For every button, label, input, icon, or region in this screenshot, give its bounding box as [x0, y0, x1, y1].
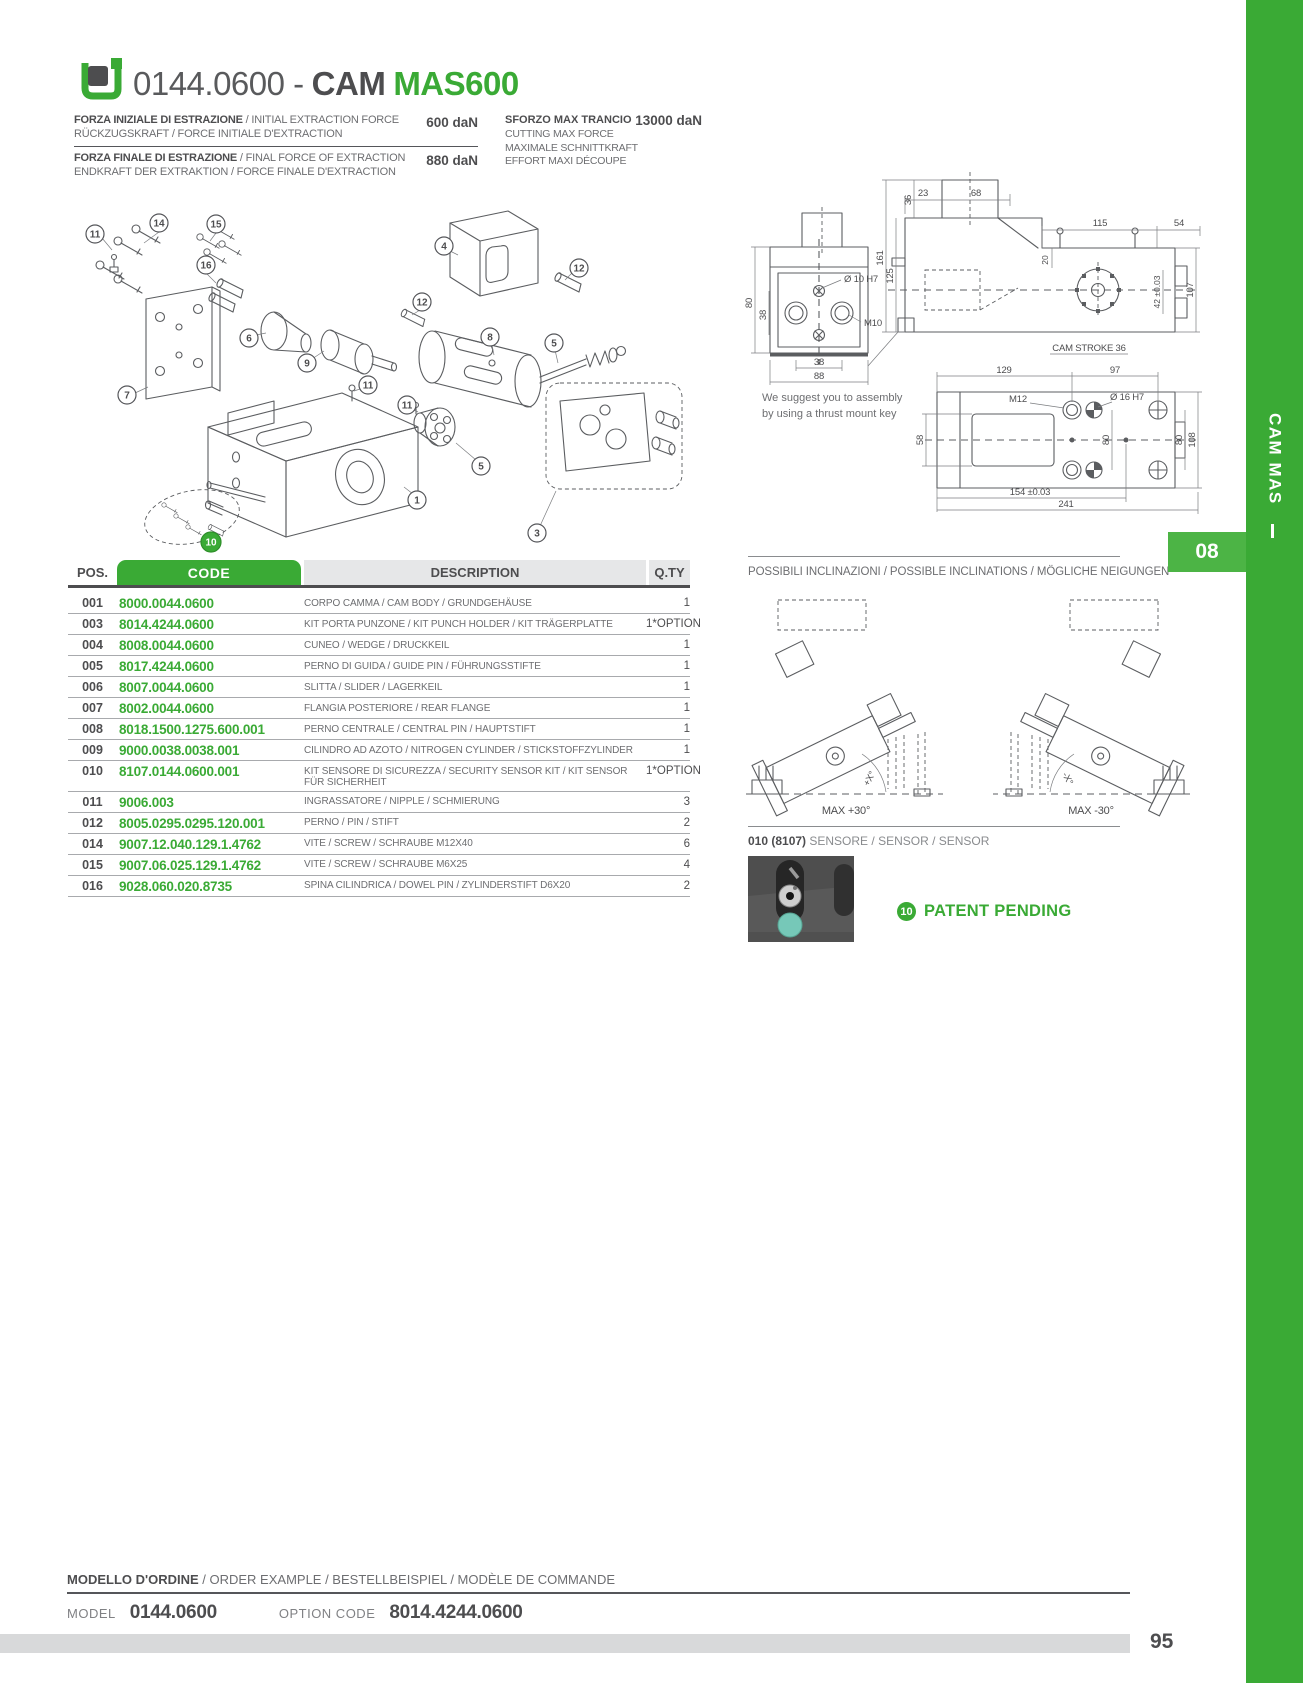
dim-label: 42 ±0.03: [1152, 275, 1162, 308]
cell-code: 9007.06.025.129.1.4762: [117, 858, 304, 873]
cell-desc: PERNO / PIN / STIFT: [304, 816, 646, 831]
cell-qty: 1: [646, 659, 690, 674]
balloon-8: 8: [481, 328, 499, 346]
dim-label: 80: [1101, 435, 1112, 445]
wedge-outline: [450, 211, 538, 296]
section-divider: [748, 556, 1120, 557]
cell-code: 9028.060.020.8735: [117, 879, 304, 894]
dim-label: Ø 10 H7: [844, 274, 878, 285]
balloon-10-sensor: 10: [201, 532, 221, 552]
dim-label: 241: [1058, 499, 1073, 510]
cell-desc: VITE / SCREW / SCHRAUBE M6X25: [304, 858, 646, 873]
balloon-1: 1: [408, 491, 426, 509]
inclination-positive-drawing: +X° MAX +30°: [738, 584, 953, 819]
dim-label: 38: [758, 310, 769, 320]
cell-pos: 015: [68, 858, 117, 873]
cell-pos: 001: [68, 596, 117, 611]
svg-text:12: 12: [416, 298, 428, 309]
cell-desc: PERNO DI GUIDA / GUIDE PIN / FÜHRUNGSSTI…: [304, 659, 646, 674]
balloon-12a: 12: [570, 259, 588, 277]
dim-label: 80: [1174, 435, 1185, 445]
cell-qty: 6: [646, 837, 690, 852]
cell-qty: 1: [646, 701, 690, 716]
max-angle-label: MAX -30°: [1068, 805, 1114, 817]
angle-label: -X°: [1059, 771, 1075, 788]
exploded-view-drawing: 11 14 15 16 6 9 7 4 12 12 8 5 11 11 5 1 …: [60, 195, 690, 555]
svg-text:11: 11: [90, 230, 101, 241]
table-row: 0119006.003INGRASSATORE / NIPPLE / SCHMI…: [68, 792, 690, 813]
parts-table-header: POS. CODE DESCRIPTION Q.TY: [68, 560, 690, 588]
cell-code: 8007.0044.0600: [117, 680, 304, 695]
punch-holder-outline: [546, 383, 682, 489]
spec-label-fr: EFFORT MAXI DÉCOUPE: [505, 155, 702, 169]
cell-qty: 2: [646, 816, 690, 831]
cell-code: 8008.0044.0600: [117, 638, 304, 653]
slider-outline: [419, 331, 541, 407]
dim-label: 20: [1040, 255, 1050, 265]
table-row: 0038014.4244.0600KIT PORTA PUNZONE / KIT…: [68, 614, 690, 635]
table-row: 0108107.0144.0600.001KIT SENSORE DI SICU…: [68, 761, 690, 792]
cell-code: 9006.003: [117, 795, 304, 810]
col-header-description: DESCRIPTION: [304, 560, 646, 585]
cell-pos: 009: [68, 743, 117, 758]
balloon-14: 14: [150, 214, 168, 232]
catalog-page: 0144.0600 -CAMMAS600 FORZA INIZIALE DI E…: [0, 0, 1303, 1683]
page-title: 0144.0600 -CAMMAS600: [133, 62, 519, 106]
dim-label: 58: [915, 435, 926, 445]
cell-qty: 1: [646, 596, 690, 611]
green-bracket-logo-icon: [75, 56, 125, 106]
cell-qty: 3: [646, 795, 690, 810]
dim-label: 88: [814, 371, 824, 382]
spec-label-de-fr: ENDKRAFT DER EXTRAKTION / FORCE FINALE D…: [74, 166, 408, 180]
svg-text:8: 8: [487, 333, 493, 344]
table-row: 0099000.0038.0038.001CILINDRO AD AZOTO /…: [68, 740, 690, 761]
dim-label: 129: [996, 365, 1011, 376]
side-view-drawing: 23 68 36 161 125 115 54 20 42 ±0.03 107 …: [880, 170, 1205, 370]
extraction-force-specs: FORZA INIZIALE DI ESTRAZIONE / INITIAL E…: [74, 112, 478, 184]
table-row: 0159007.06.025.129.1.4762VITE / SCREW / …: [68, 855, 690, 876]
table-row: 0048008.0044.0600CUNEO / WEDGE / DRUCKKE…: [68, 635, 690, 656]
cell-desc: KIT SENSORE DI SICUREZZA / SECURITY SENS…: [304, 764, 646, 789]
svg-text:9: 9: [304, 359, 310, 370]
svg-text:5: 5: [551, 339, 557, 350]
svg-text:7: 7: [124, 391, 130, 402]
cell-pos: 006: [68, 680, 117, 695]
chapter-number-tab: 08: [1168, 532, 1246, 572]
product-model: MAS600: [393, 65, 518, 102]
cell-desc: CORPO CAMMA / CAM BODY / GRUNDGEHÄUSE: [304, 596, 646, 611]
cell-pos: 012: [68, 816, 117, 831]
cell-qty: 2: [646, 879, 690, 894]
cell-pos: 016: [68, 879, 117, 894]
sensor-ref: 010 (8107): [748, 834, 806, 848]
cell-pos: 004: [68, 638, 117, 653]
parts-table: POS. CODE DESCRIPTION Q.TY 0018000.0044.…: [68, 560, 690, 897]
spec-label-it: SFORZO MAX TRANCIO: [505, 112, 632, 128]
grease-nipple: [110, 255, 118, 273]
dowel-pins: [208, 278, 243, 312]
spec-label-en: / FINAL FORCE OF EXTRACTION: [237, 152, 405, 164]
balloon-7: 7: [118, 386, 136, 404]
dim-label: 68: [971, 188, 981, 199]
product-code: 0144.0600 -: [133, 65, 304, 102]
dim-label: 125: [885, 268, 896, 283]
balloon-5b: 5: [472, 457, 490, 475]
model-label: MODEL: [67, 1606, 116, 1621]
cell-code: 8014.4244.0600: [117, 617, 304, 632]
coupler-disc-outline: [414, 403, 456, 447]
cell-desc: PERNO CENTRALE / CENTRAL PIN / HAUPTSTIF…: [304, 722, 646, 737]
inclination-negative-drawing: -X° MAX -30°: [983, 584, 1198, 819]
dim-label: 23: [918, 188, 928, 199]
svg-text:1: 1: [414, 496, 420, 507]
spec-value: 13000 daN: [632, 112, 702, 128]
cell-code: 8107.0144.0600.001: [117, 764, 304, 789]
balloon-4: 4: [435, 237, 453, 255]
table-row: 0068007.0044.0600SLITTA / SLIDER / LAGER…: [68, 677, 690, 698]
cell-desc: KIT PORTA PUNZONE / KIT PUNCH HOLDER / K…: [304, 617, 646, 632]
order-example-row: MODEL 0144.0600 OPTION CODE 8014.4244.06…: [67, 1602, 523, 1624]
table-row: 0088018.1500.1275.600.001PERNO CENTRALE …: [68, 719, 690, 740]
table-row: 0058017.4244.0600PERNO DI GUIDA / GUIDE …: [68, 656, 690, 677]
order-title-bold: MODELLO D'ORDINE: [67, 1572, 199, 1587]
order-divider: [67, 1592, 1130, 1594]
section-divider: [748, 826, 1120, 827]
spec-row-initial-force: FORZA INIZIALE DI ESTRAZIONE / INITIAL E…: [74, 112, 478, 146]
balloon-16: 16: [197, 256, 215, 274]
cell-qty: 1: [646, 680, 690, 695]
table-row: 0149007.12.040.129.1.4762VITE / SCREW / …: [68, 834, 690, 855]
cell-desc: SPINA CILINDRICA / DOWEL PIN / ZYLINDERS…: [304, 879, 646, 894]
svg-text:10: 10: [205, 538, 217, 549]
cam-stroke-label: CAM STROKE 36: [1052, 343, 1125, 354]
page-number: 95: [1140, 1630, 1210, 1654]
sensor-caption: 010 (8107) SENSORE / SENSOR / SENSOR: [748, 834, 989, 848]
order-title-rest: / ORDER EXAMPLE / BESTELLBEISPIEL / MODÈ…: [199, 1572, 615, 1587]
balloon-12b: 12: [413, 293, 431, 311]
cell-pos: 005: [68, 659, 117, 674]
footer-bar: [0, 1634, 1130, 1653]
order-example-title: MODELLO D'ORDINE / ORDER EXAMPLE / BESTE…: [67, 1572, 615, 1587]
angle-label: +X°: [861, 769, 878, 788]
cell-code: 8017.4244.0600: [117, 659, 304, 674]
dim-label: 80: [744, 298, 755, 308]
cell-qty: 1*OPTION: [646, 617, 690, 632]
screws-m12: [96, 225, 160, 293]
spec-value: 880 daN: [408, 152, 478, 168]
cell-pos: 011: [68, 795, 117, 810]
balloon-11c: 11: [398, 396, 416, 414]
inclinations-title: POSSIBILI INCLINAZIONI / POSSIBLE INCLIN…: [748, 566, 1169, 578]
sensor-name: SENSORE / SENSOR / SENSOR: [806, 834, 989, 848]
bottom-view-drawing: M12 Ø 16 H7 129 97 58 80 80 108 154 ±0.0…: [880, 362, 1205, 514]
chapter-sidebar: [1246, 0, 1303, 1683]
cell-desc: CILINDRO AD AZOTO / NITROGEN CYLINDER / …: [304, 743, 646, 758]
dim-label: 36: [903, 195, 914, 205]
svg-text:15: 15: [210, 220, 222, 231]
cell-qty: 1: [646, 638, 690, 653]
dim-label: 107: [1185, 282, 1196, 297]
cell-code: 8018.1500.1275.600.001: [117, 722, 304, 737]
cell-desc: FLANGIA POSTERIORE / REAR FLANGE: [304, 701, 646, 716]
max-angle-label: MAX +30°: [822, 805, 870, 817]
model-value: 0144.0600: [130, 1602, 217, 1624]
sensor-photo: [748, 856, 854, 942]
cell-code: 8005.0295.0295.120.001: [117, 816, 304, 831]
cell-code: 9000.0038.0038.001: [117, 743, 304, 758]
spec-label-en: CUTTING MAX FORCE: [505, 128, 702, 142]
svg-text:12: 12: [573, 264, 585, 275]
cell-desc: SLITTA / SLIDER / LAGERKEIL: [304, 680, 646, 695]
cell-pos: 007: [68, 701, 117, 716]
spec-row-final-force: FORZA FINALE DI ESTRAZIONE / FINAL FORCE…: [74, 146, 478, 184]
spec-label-de-fr: RÜCKZUGSKRAFT / FORCE INITIALE D'EXTRACT…: [74, 128, 408, 142]
guide-pin-outline: [321, 330, 397, 374]
spec-label-en: / INITIAL EXTRACTION FORCE: [243, 114, 399, 126]
spec-label-de: MAXIMALE SCHNITTKRAFT: [505, 142, 702, 156]
cell-pos: 014: [68, 837, 117, 852]
svg-text:16: 16: [200, 261, 212, 272]
balloon-11b: 11: [359, 376, 377, 394]
col-header-code: CODE: [117, 560, 301, 585]
cell-qty: 4: [646, 858, 690, 873]
cell-code: 8000.0044.0600: [117, 596, 304, 611]
cutting-force-spec: SFORZO MAX TRANCIO 13000 daN CUTTING MAX…: [505, 112, 702, 169]
table-row: 0169028.060.020.8735SPINA CILINDRICA / D…: [68, 876, 690, 897]
svg-text:11: 11: [363, 381, 374, 392]
svg-text:14: 14: [153, 219, 165, 230]
rear-flange-outline: [146, 287, 220, 399]
cell-qty: 1*OPTION: [646, 764, 690, 789]
table-row: 0018000.0044.0600CORPO CAMMA / CAM BODY …: [68, 593, 690, 614]
col-header-qty: Q.TY: [649, 560, 690, 585]
svg-text:3: 3: [534, 529, 540, 540]
col-header-pos: POS.: [68, 560, 117, 585]
parts-table-body: 0018000.0044.0600CORPO CAMMA / CAM BODY …: [68, 588, 690, 897]
patent-pending-label: PATENT PENDING: [924, 902, 1072, 921]
dim-label: M12: [1009, 394, 1027, 405]
cell-pos: 010: [68, 764, 117, 789]
cell-desc: CUNEO / WEDGE / DRUCKKEIL: [304, 638, 646, 653]
sidebar-divider: [1271, 524, 1274, 538]
option-code-value: 8014.4244.0600: [389, 1602, 522, 1624]
balloon-15: 15: [207, 215, 225, 233]
table-row: 0078002.0044.0600FLANGIA POSTERIORE / RE…: [68, 698, 690, 719]
dim-label: Ø 16 H7: [1110, 392, 1144, 403]
cell-code: 9007.12.040.129.1.4762: [117, 837, 304, 852]
product-family: CAM: [312, 65, 386, 102]
spec-value: 600 daN: [408, 114, 478, 130]
balloon-9: 9: [298, 354, 316, 372]
svg-text:4: 4: [441, 242, 447, 253]
option-code-label: OPTION CODE: [279, 1606, 376, 1621]
balloon-10-badge: 10: [897, 902, 916, 921]
cell-code: 8002.0044.0600: [117, 701, 304, 716]
spec-label-it: FORZA FINALE DI ESTRAZIONE: [74, 152, 237, 164]
cell-pos: 008: [68, 722, 117, 737]
balloon-5a: 5: [545, 334, 563, 352]
spec-label-it: FORZA INIZIALE DI ESTRAZIONE: [74, 114, 243, 126]
balloon-3: 3: [528, 524, 546, 542]
table-row: 0128005.0295.0295.120.001PERNO / PIN / S…: [68, 813, 690, 834]
cell-qty: 1: [646, 743, 690, 758]
guide-bush-outline: [261, 312, 311, 352]
svg-text:5: 5: [478, 462, 484, 473]
svg-text:6: 6: [246, 334, 252, 345]
balloon-6: 6: [240, 329, 258, 347]
dim-label: 97: [1110, 365, 1120, 376]
cell-desc: INGRASSATORE / NIPPLE / SCHMIERUNG: [304, 795, 646, 810]
cell-pos: 003: [68, 617, 117, 632]
dim-label: 54: [1174, 218, 1184, 229]
svg-text:11: 11: [402, 401, 413, 412]
chapter-sidebar-label: CAM MAS: [1246, 393, 1303, 525]
dim-label: 154 ±0.03: [1010, 487, 1050, 498]
patent-pending: 10 PATENT PENDING: [897, 902, 1072, 921]
dim-label: 115: [1093, 218, 1108, 229]
cell-qty: 1: [646, 722, 690, 737]
cell-desc: VITE / SCREW / SCHRAUBE M12X40: [304, 837, 646, 852]
balloon-11: 11: [86, 225, 104, 243]
dim-label: 38: [814, 357, 824, 368]
dim-label: 108: [1187, 432, 1198, 447]
dim-label: 161: [875, 250, 886, 265]
